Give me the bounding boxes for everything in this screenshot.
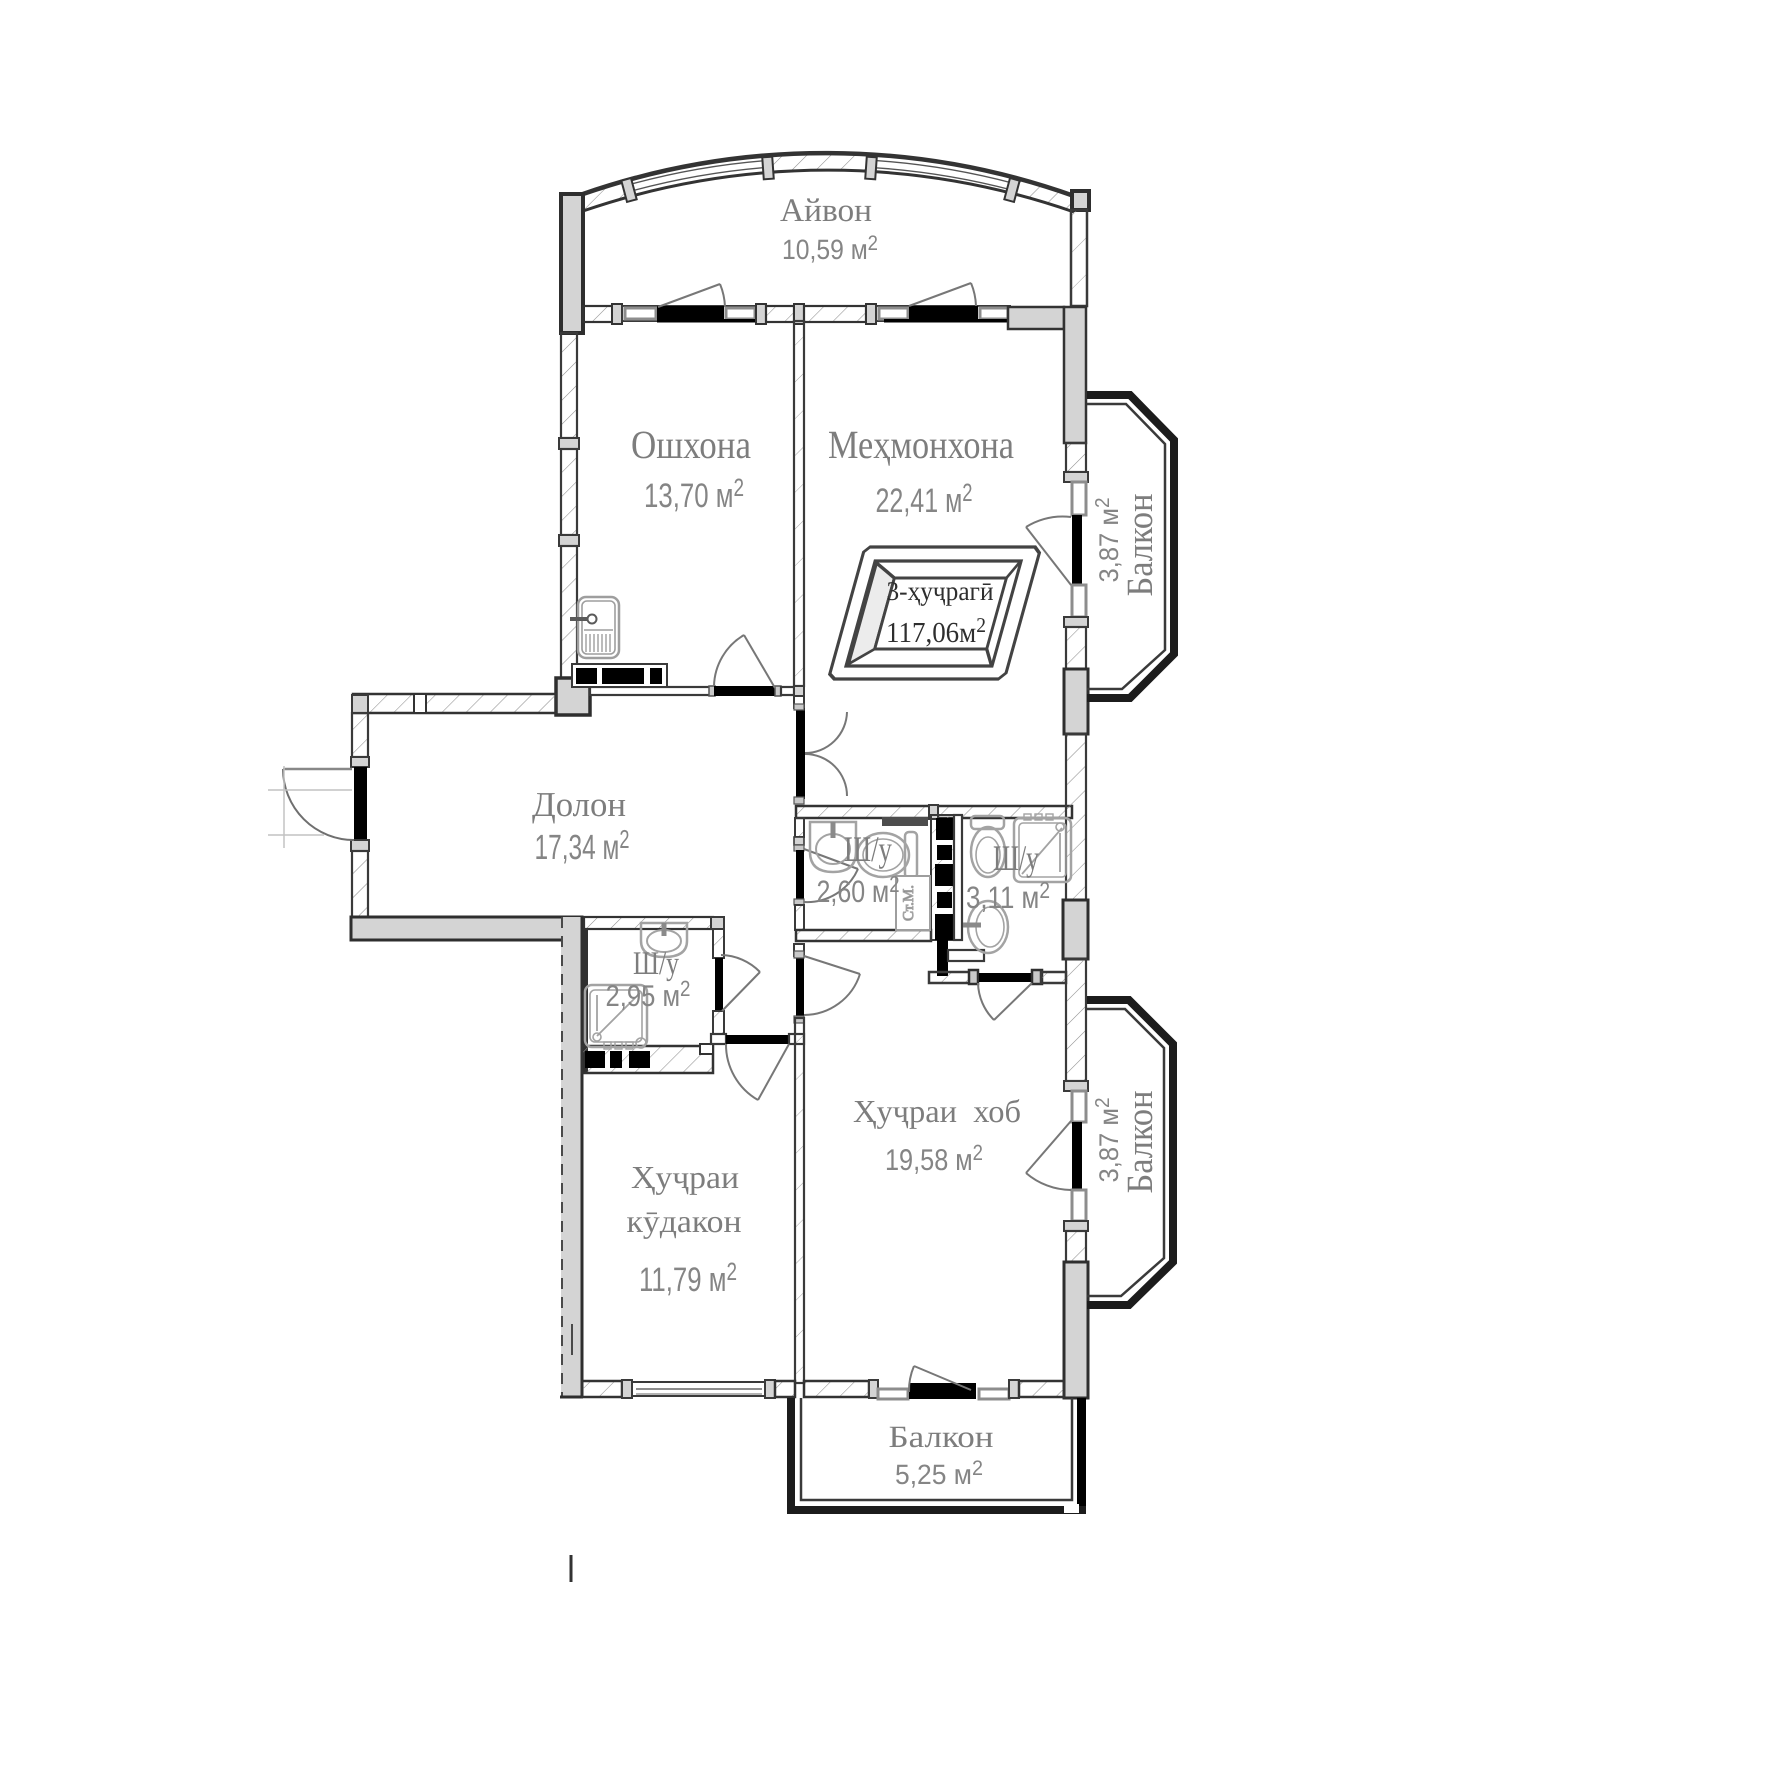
svg-text:3,87 м2: 3,87 м2 bbox=[1092, 498, 1124, 583]
svg-text:17,34 м2: 17,34 м2 bbox=[535, 824, 630, 867]
svg-text:13,70 м2: 13,70 м2 bbox=[644, 474, 744, 515]
svg-text:3,87 м2: 3,87 м2 bbox=[1092, 1098, 1124, 1183]
svg-text:Ш/у: Ш/у bbox=[993, 838, 1039, 878]
svg-text:Балкон: Балкон bbox=[1120, 1091, 1161, 1194]
svg-text:Ҳуҷраи: Ҳуҷраи bbox=[631, 1159, 739, 1195]
svg-text:Ст.М.: Ст.М. bbox=[901, 885, 917, 921]
svg-text:2,95 м2: 2,95 м2 bbox=[606, 976, 691, 1013]
svg-text:Ошхона: Ошхона bbox=[631, 422, 751, 467]
svg-text:11,79 м2: 11,79 м2 bbox=[639, 1258, 737, 1299]
svg-text:117,06м2: 117,06м2 bbox=[886, 613, 986, 649]
svg-text:Долон: Долон bbox=[532, 785, 626, 824]
svg-text:5,25 м2: 5,25 м2 bbox=[895, 1457, 983, 1490]
svg-text:Балкон: Балкон bbox=[889, 1419, 994, 1454]
svg-text:19,58 м2: 19,58 м2 bbox=[885, 1140, 983, 1177]
svg-text:2,60 м2: 2,60 м2 bbox=[817, 871, 900, 909]
svg-text:Ш/у: Ш/у bbox=[633, 946, 679, 982]
svg-text:Ш/у: Ш/у bbox=[844, 829, 892, 869]
svg-text:10,59 м2: 10,59 м2 bbox=[782, 232, 878, 265]
svg-text:Айвон: Айвон bbox=[780, 193, 872, 229]
svg-text:Балкон: Балкон bbox=[1120, 494, 1161, 597]
svg-text:кӯдакон: кӯдакон bbox=[627, 1203, 742, 1239]
svg-text:3-ҳуҷрагӣ: 3-ҳуҷрагӣ bbox=[887, 576, 994, 606]
svg-text:22,41 м2: 22,41 м2 bbox=[876, 479, 973, 520]
svg-text:3,11 м2: 3,11 м2 bbox=[966, 877, 1050, 915]
svg-text:Меҳмонхона: Меҳмонхона bbox=[828, 422, 1014, 467]
svg-text:Ҳуҷраи хоб: Ҳуҷраи хоб bbox=[853, 1093, 1021, 1129]
